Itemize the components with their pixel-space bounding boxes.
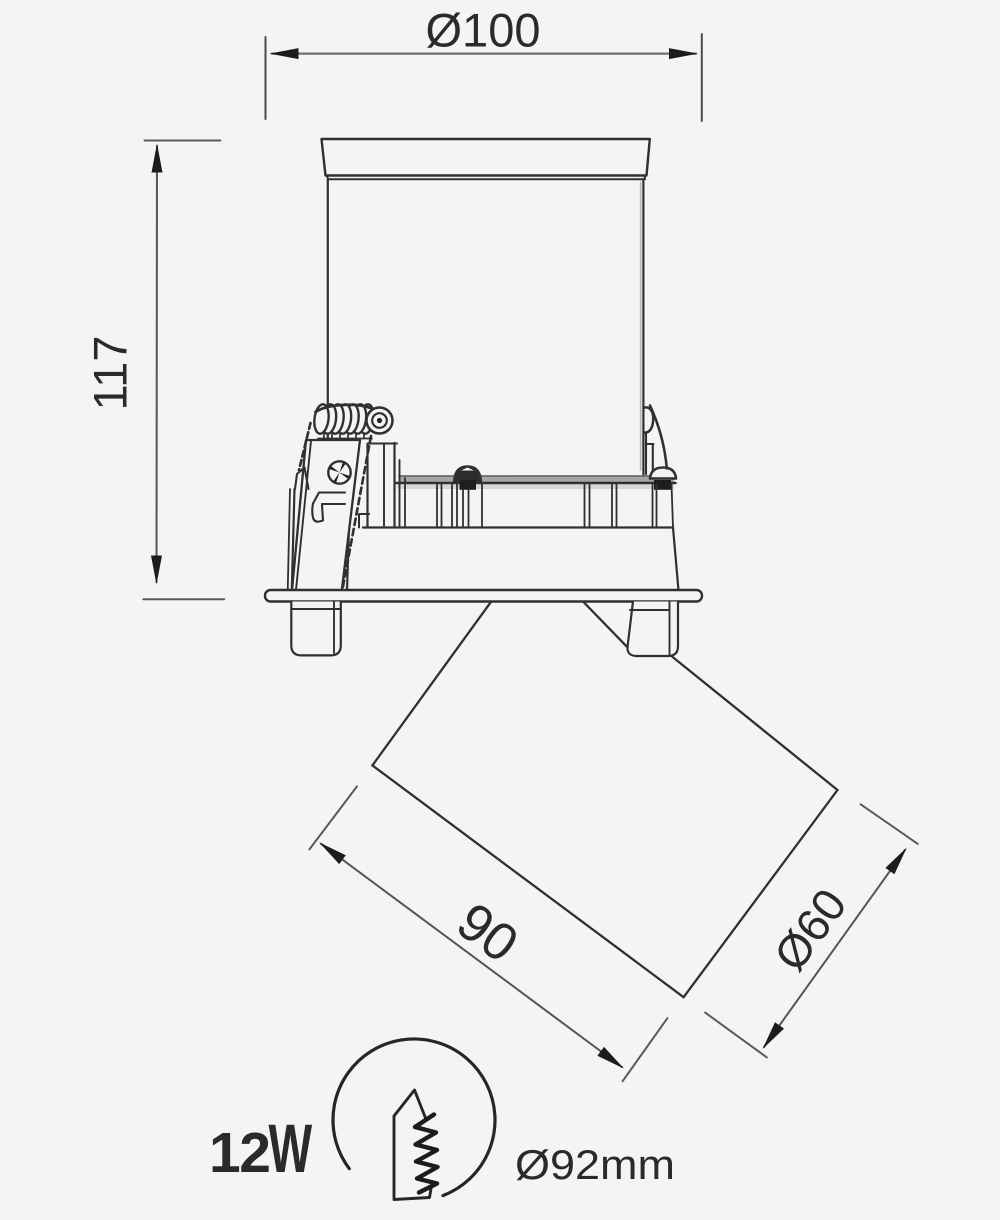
svg-text:12: 12 (209, 1121, 271, 1185)
svg-text:117: 117 (84, 336, 137, 411)
svg-text:Ø100: Ø100 (426, 4, 541, 57)
svg-text:Ø92mm: Ø92mm (515, 1141, 675, 1188)
svg-text:W: W (269, 1111, 313, 1187)
